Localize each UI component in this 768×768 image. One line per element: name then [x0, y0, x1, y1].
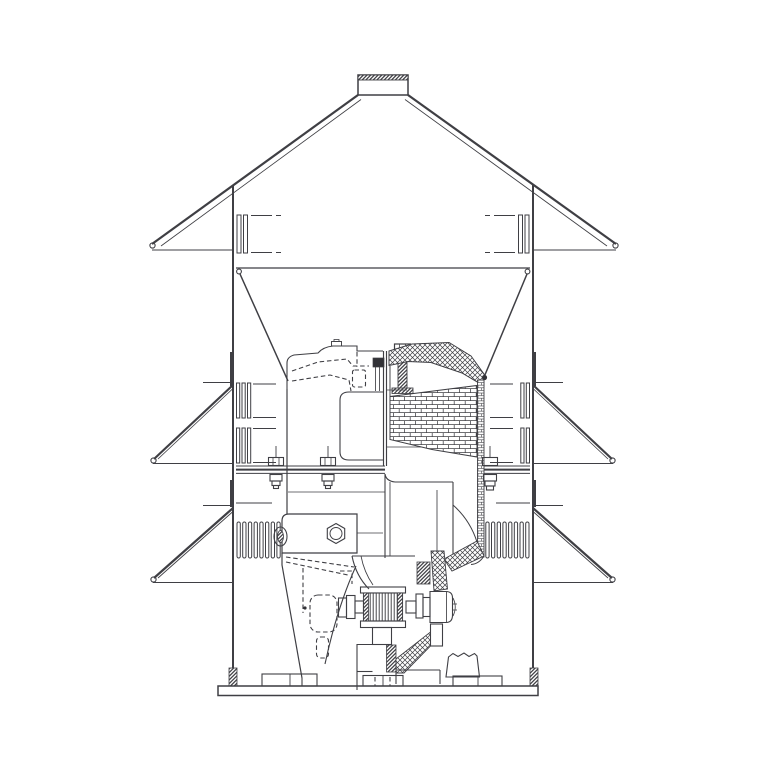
louvre-slot	[526, 428, 529, 463]
roof-slope-right	[408, 95, 616, 244]
collar-cone-left	[154, 508, 233, 578]
flange-bolt-nut	[272, 481, 280, 486]
base-frame	[218, 674, 538, 696]
motor-finned-body	[364, 593, 403, 621]
hood-bolt	[332, 342, 342, 347]
support-leg-outer	[282, 553, 302, 678]
collar-tip-right	[610, 577, 615, 582]
flange-bolt-nut	[322, 475, 334, 482]
drive-motor	[339, 587, 458, 628]
storm-collar-bottom	[151, 506, 615, 583]
louvre-slot	[248, 383, 251, 418]
roof-slope-left	[152, 95, 358, 244]
louvre-slot	[492, 522, 495, 558]
louvre-slot	[248, 428, 251, 463]
wall-base-section	[229, 668, 237, 686]
drawing-canvas	[0, 0, 768, 768]
hidden-detail	[353, 370, 366, 387]
collar-tip-right	[610, 458, 615, 463]
funnel-cone-right	[485, 274, 528, 376]
bracket-bolt-circle	[330, 528, 342, 540]
coupling-disc	[416, 594, 423, 618]
collar-cone-inner	[533, 512, 608, 579]
louvre-slot	[509, 522, 512, 558]
shaft-key-section	[373, 358, 384, 367]
collar-cone-inner	[158, 389, 233, 460]
louvre-slot	[503, 522, 506, 558]
louvre-slot	[243, 522, 246, 558]
base-plate	[218, 686, 538, 696]
casing-rim-strip	[478, 380, 485, 557]
flange-bolt-tail	[326, 486, 331, 489]
louvre-slot	[237, 383, 240, 418]
weather-hood-roof	[150, 95, 618, 250]
impeller-hatched	[390, 386, 477, 458]
pedestal	[357, 624, 443, 690]
ventilator-section-drawing	[0, 0, 768, 768]
motor-edge-band	[364, 593, 369, 621]
flange-bolt-nut	[484, 475, 497, 482]
louvre-slot	[242, 383, 245, 418]
collar-cone-inner	[533, 389, 608, 460]
collar-cone-right	[533, 508, 612, 578]
funnel-cone-left	[240, 274, 288, 381]
centre-mark	[303, 606, 306, 609]
hub-cap	[453, 598, 455, 616]
gusset-section	[396, 632, 431, 673]
gusset-post	[431, 624, 443, 646]
fan-scroll-outline	[340, 392, 383, 460]
side-bolt	[278, 531, 284, 543]
support-arm	[431, 551, 448, 591]
hidden-line	[292, 375, 351, 391]
frame-curve	[385, 474, 395, 482]
louvre-slot	[521, 428, 524, 463]
louvre-slot	[514, 522, 517, 558]
louvre-slot	[242, 428, 245, 463]
motor-shaft	[406, 601, 416, 613]
flange-bolt-tail	[274, 486, 279, 489]
louvre-slot	[525, 215, 529, 253]
collar-tip-left	[151, 577, 156, 582]
flange-bolt-head	[321, 458, 336, 466]
step-bracket	[357, 645, 373, 691]
hidden-line	[340, 571, 352, 584]
collar-cone-inner	[158, 512, 233, 579]
bell-curve-inner	[361, 556, 373, 585]
pedestal-hatch-strip	[387, 645, 397, 672]
louvre-slot	[519, 215, 523, 253]
motor-end-flange	[361, 621, 406, 628]
louvre-slot	[526, 383, 529, 418]
drain-spout	[446, 653, 480, 677]
impeller-hood-outline	[287, 340, 383, 515]
louvre-slot	[520, 522, 523, 558]
collar-cone-right	[533, 385, 612, 459]
louvre-slot	[237, 522, 240, 558]
louvre-slot	[521, 383, 524, 418]
louvre-slot	[248, 522, 251, 558]
flange-bolt-nut	[487, 486, 494, 490]
support-wedge	[444, 541, 484, 571]
bell-mouth	[352, 556, 415, 589]
pedestal-column	[373, 628, 392, 645]
hub-washer	[392, 388, 413, 394]
wall-base-section	[530, 668, 538, 686]
hidden-line	[286, 557, 354, 567]
support-leg-inner	[325, 566, 356, 664]
motor-support-frame	[288, 474, 477, 558]
hidden-detail	[310, 595, 337, 632]
louvre-slot	[497, 522, 500, 558]
flange-bolt-head	[483, 458, 498, 466]
coupling-block	[423, 598, 430, 617]
motor-shaft	[355, 601, 364, 613]
motor-shaft-disc	[347, 596, 356, 619]
bracket-plate	[282, 514, 357, 553]
roof-inner-right	[405, 100, 607, 247]
cap-hatch-band	[358, 75, 408, 80]
louvre-slot	[244, 215, 248, 253]
foundation-foot	[262, 674, 317, 686]
funnel-pivot-left	[237, 269, 242, 274]
louvre-slot	[260, 522, 263, 558]
louvre-slot	[266, 522, 269, 558]
roof-inner-left	[161, 100, 361, 247]
collar-tip-left	[151, 458, 156, 463]
flange-bolt-head	[269, 458, 284, 466]
louvre-slot	[526, 522, 529, 558]
hood-bolt-cap	[334, 340, 339, 342]
louvre-slot	[237, 215, 241, 253]
funnel-pivot-right	[525, 269, 530, 274]
casing-cone-line	[453, 505, 477, 542]
flange-bolt-nut	[485, 481, 495, 486]
drain-body	[446, 653, 480, 677]
casing-supports-section	[417, 541, 484, 591]
shroud-rim-pivot	[482, 375, 487, 380]
flange-bolt-nut	[270, 475, 282, 482]
bearing-hub	[430, 592, 453, 623]
louvre-slot	[237, 428, 240, 463]
collar-cone-left	[154, 385, 233, 459]
flange-bolt-nut	[324, 481, 332, 486]
louvre-slot	[486, 522, 489, 558]
hidden-line	[286, 562, 348, 575]
exhaust-cap	[358, 75, 408, 95]
louvre-slot	[254, 522, 257, 558]
anti-vibration-mount	[417, 562, 430, 584]
motor-edge-band	[398, 593, 403, 621]
louvre-slots-top	[237, 215, 529, 253]
